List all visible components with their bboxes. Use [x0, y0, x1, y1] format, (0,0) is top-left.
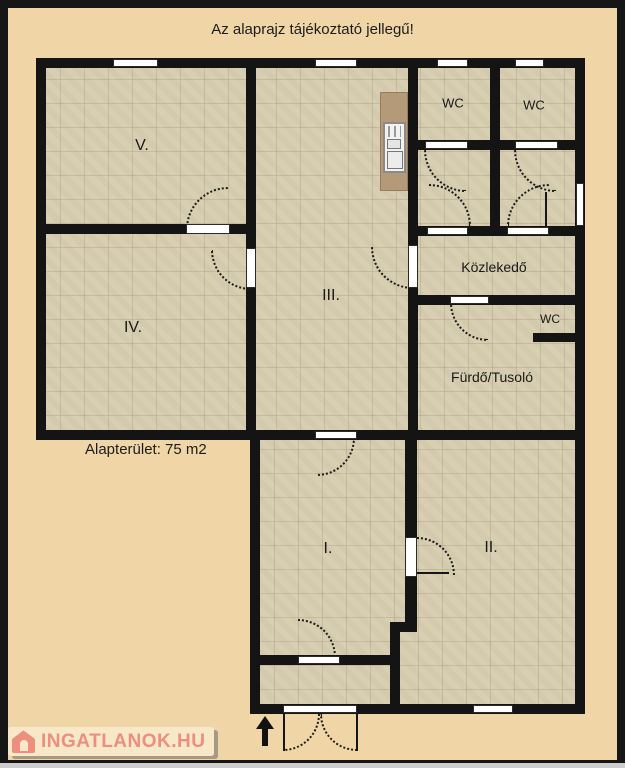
door-opening [246, 248, 256, 288]
floorplan-image: Az alaprajz tájékoztató jellegű! Alapter… [0, 0, 625, 768]
room-label-iii: III. [322, 287, 340, 305]
window [576, 183, 584, 226]
house-door [20, 740, 28, 751]
door-opening [515, 141, 558, 149]
stove-icon [387, 151, 403, 169]
wall [405, 430, 417, 630]
door-leaf [417, 572, 449, 574]
room-label-wc-2: WC [523, 98, 545, 113]
wall [575, 58, 585, 714]
roof-cut-right [23, 730, 35, 739]
wall [36, 58, 46, 440]
sink-bowl-icon [387, 139, 401, 149]
room-label-furdo: Fürdő/Tusoló [451, 369, 533, 385]
door-swing-arc [283, 714, 320, 751]
room-label-kozlekedo: Közlekedő [461, 259, 526, 275]
room-label-v: V. [135, 137, 149, 155]
door-leaf [283, 714, 285, 751]
watermark-badge: INGATLANOK.HU [8, 727, 214, 756]
watermark-text: INGATLANOK.HU [41, 731, 205, 753]
door-opening [298, 656, 340, 664]
room-label-iv: IV. [124, 319, 142, 337]
house-icon [12, 730, 35, 753]
door-opening [408, 245, 418, 288]
door-swing-arc [320, 714, 357, 751]
kitchen-sink-icon [383, 122, 406, 173]
disclaimer-title: Az alaprajz tájékoztató jellegű! [0, 21, 625, 38]
arrow-stem [262, 729, 268, 746]
window [473, 705, 513, 713]
door-opening [427, 227, 468, 235]
wall [36, 430, 585, 440]
window [515, 59, 544, 67]
door-opening [405, 537, 417, 577]
wall [250, 430, 260, 714]
door-leaf [356, 714, 358, 751]
room-label-ii: II. [484, 539, 497, 557]
area-label: Alapterület: 75 m2 [85, 441, 207, 458]
door-opening [507, 227, 549, 235]
arrow-head [256, 716, 274, 729]
door-leaf [545, 192, 547, 227]
window [437, 59, 468, 67]
entrance-door-opening [283, 705, 357, 713]
wall [408, 295, 585, 305]
bottom-edge-strip [0, 763, 625, 768]
door-opening [186, 224, 230, 234]
room-label-wc-3: WC [540, 312, 560, 326]
window [113, 59, 158, 67]
entrance-arrow-icon [256, 716, 274, 748]
door-opening [315, 431, 357, 439]
door-opening [425, 141, 468, 149]
door-opening [450, 296, 489, 304]
wall [533, 333, 585, 342]
room-label-i: I. [324, 540, 333, 558]
room-label-wc-1: WC [442, 96, 464, 111]
sink-drainer-icon [388, 126, 401, 137]
window [315, 59, 357, 67]
wall [390, 622, 400, 714]
